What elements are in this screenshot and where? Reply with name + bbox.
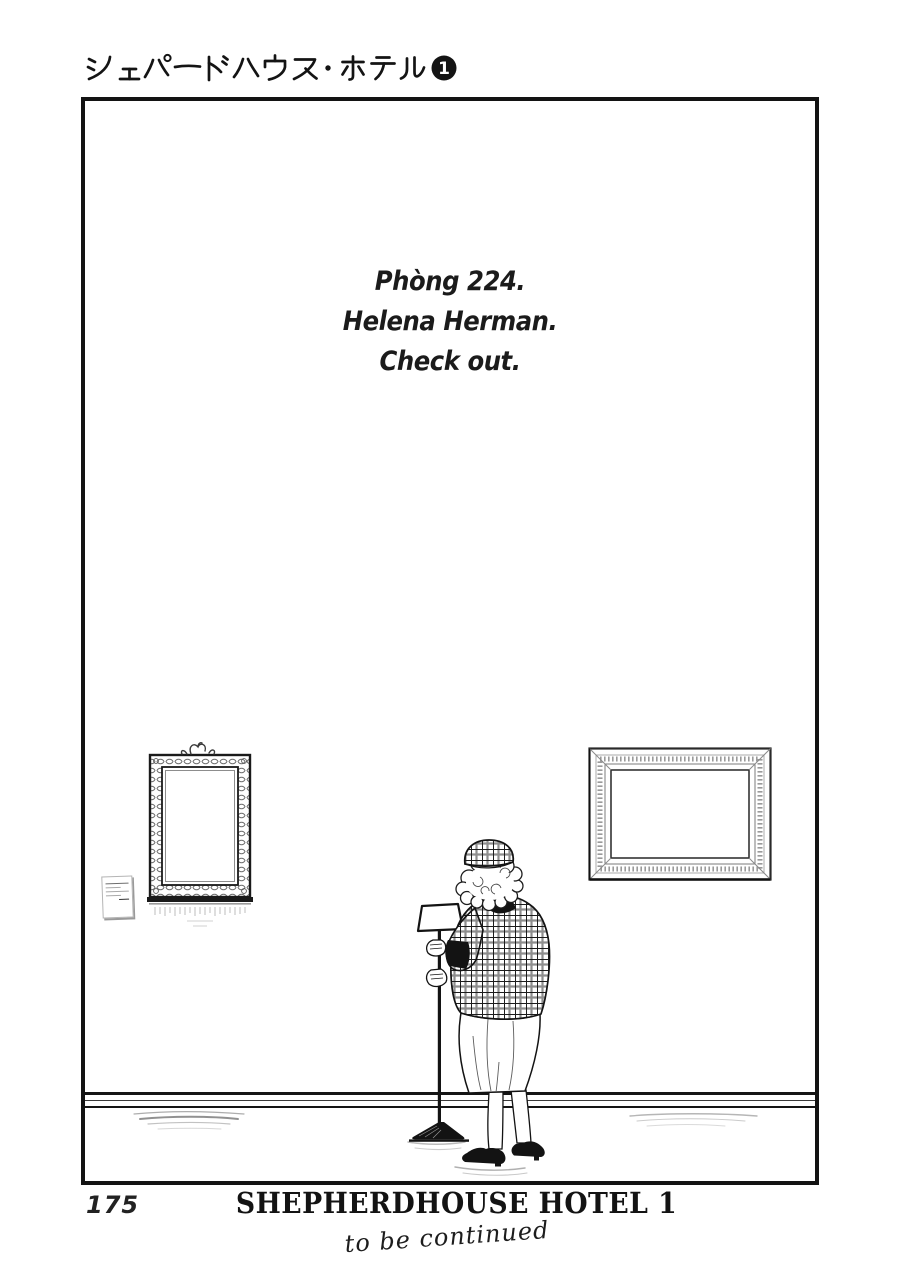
dialogue-line-1: Phòng 224. xyxy=(180,262,720,302)
placard-text-line xyxy=(106,894,121,896)
kana-te xyxy=(372,58,395,80)
dialogue-line-2: Helena Herman. xyxy=(180,302,720,342)
volume-number: 1 xyxy=(438,59,450,79)
placard-text-line xyxy=(119,898,129,900)
manga-page: { "header": { "title": "シェパードハウス・ホテル", "… xyxy=(0,0,900,1280)
placard-text-line xyxy=(106,882,129,884)
frame-crest-ornament xyxy=(181,743,214,754)
frame-sill xyxy=(147,897,253,902)
page-title-katakana-art: 1 xyxy=(84,50,464,86)
wall-label-placard xyxy=(101,875,133,918)
lamp-base xyxy=(412,1122,464,1139)
woman-hat xyxy=(465,840,513,868)
kana-u xyxy=(265,56,285,80)
dialogue-line-3: Check out. xyxy=(180,342,720,382)
kana-ha xyxy=(234,59,258,77)
ornate-picture-frame-art xyxy=(147,739,253,934)
beveled-picture-frame-art xyxy=(588,747,774,885)
kana-ho xyxy=(343,57,364,80)
woman-and-lamp-illustration xyxy=(403,836,568,1178)
woman-hands xyxy=(427,940,447,986)
volume-badge: 1 xyxy=(432,56,457,81)
kana-small-e xyxy=(120,69,139,79)
kana-ru xyxy=(401,58,424,79)
kana-long-dash xyxy=(175,66,200,67)
placard-text-line xyxy=(106,886,121,888)
page-header: シェパードハウス・ホテル xyxy=(84,50,484,88)
kana-do xyxy=(209,57,228,81)
wall-reflection-ticks xyxy=(155,907,245,916)
woman-shoes xyxy=(462,1141,545,1166)
kana-pa xyxy=(145,55,171,77)
placard-text-line xyxy=(106,890,129,892)
kana-middle-dot xyxy=(325,65,330,70)
kana-su xyxy=(294,60,317,80)
dialogue-text: Phòng 224. Helena Herman. Check out. xyxy=(180,262,720,382)
woman-skirt xyxy=(459,1013,540,1093)
floor-shadow-left-frame xyxy=(126,1108,251,1134)
kana-shi xyxy=(88,57,110,79)
floor-shadow-right-frame xyxy=(625,1112,765,1134)
woman-legs xyxy=(488,1090,531,1149)
